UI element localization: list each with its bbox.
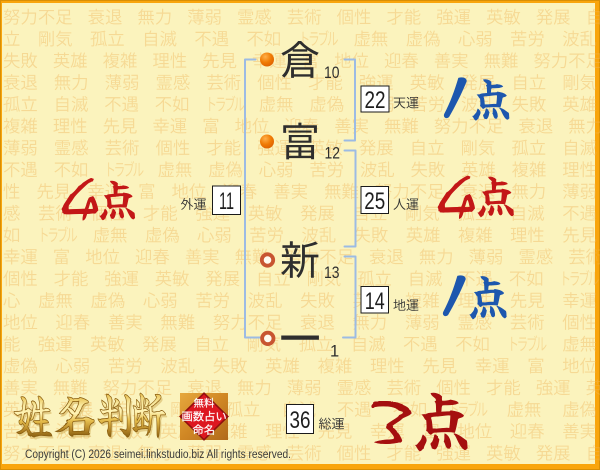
svg-text:Copyright (C) 2026 seimei.link: Copyright (C) 2026 seimei.linkstudio.biz…	[25, 447, 291, 461]
svg-text:22: 22	[365, 87, 386, 114]
svg-text:13: 13	[324, 264, 340, 282]
svg-text:10: 10	[324, 64, 340, 82]
svg-text:1: 1	[330, 343, 339, 361]
svg-text:12: 12	[325, 145, 341, 163]
svg-text:14: 14	[365, 288, 385, 315]
svg-text:36: 36	[290, 407, 311, 434]
svg-text:25: 25	[364, 188, 385, 215]
svg-text:11: 11	[219, 188, 234, 215]
